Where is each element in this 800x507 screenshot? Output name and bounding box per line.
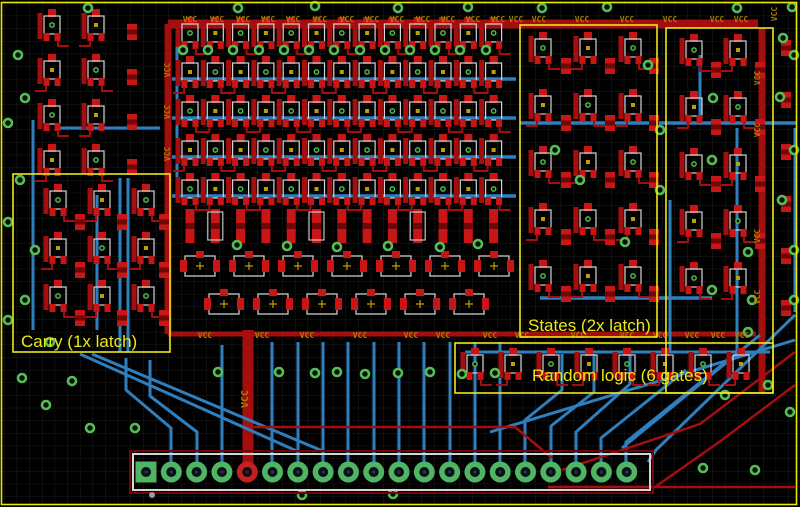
via[interactable] xyxy=(16,176,24,184)
connector-pin-9[interactable] xyxy=(338,462,359,483)
via[interactable] xyxy=(333,243,341,251)
via[interactable] xyxy=(361,370,369,378)
via[interactable] xyxy=(764,381,772,389)
via[interactable] xyxy=(229,46,237,54)
component[interactable] xyxy=(363,209,372,243)
net-label-vcc[interactable]: VCC xyxy=(240,390,251,408)
net-label-vcc[interactable]: VCC xyxy=(735,331,750,340)
component[interactable] xyxy=(159,262,169,278)
net-label-vcc[interactable]: VCC xyxy=(255,331,270,340)
component[interactable] xyxy=(127,69,137,85)
net-label-vcc[interactable]: VCC xyxy=(183,15,198,24)
via[interactable] xyxy=(394,4,402,12)
connector-pin-1[interactable] xyxy=(136,462,157,483)
connector-pin-14[interactable] xyxy=(464,462,485,483)
net-label-vcc[interactable]: VCC xyxy=(685,331,700,340)
via[interactable] xyxy=(234,4,242,12)
via[interactable] xyxy=(4,218,12,226)
via[interactable] xyxy=(786,408,794,416)
component[interactable] xyxy=(605,286,615,302)
net-label-vcc[interactable]: VCC xyxy=(620,15,635,24)
via[interactable] xyxy=(644,61,652,69)
via[interactable] xyxy=(733,4,741,12)
component[interactable] xyxy=(605,229,615,245)
annotation-label-states[interactable]: States (2x latch) xyxy=(528,316,651,335)
net-label-vcc[interactable]: VCC xyxy=(710,15,725,24)
via[interactable] xyxy=(482,46,490,54)
via[interactable] xyxy=(436,243,444,251)
connector-pin-10[interactable] xyxy=(363,462,384,483)
via[interactable] xyxy=(356,46,364,54)
component[interactable] xyxy=(711,176,721,192)
connector-pin-19[interactable] xyxy=(591,462,612,483)
net-label-vcc[interactable]: VCC xyxy=(163,63,172,78)
via[interactable] xyxy=(31,246,39,254)
net-label-vcc[interactable]: VCC xyxy=(483,331,498,340)
component[interactable] xyxy=(287,209,296,243)
via[interactable] xyxy=(21,296,29,304)
component[interactable] xyxy=(561,115,571,131)
via[interactable] xyxy=(431,46,439,54)
net-label-vcc[interactable]: VCC xyxy=(340,15,355,24)
component[interactable] xyxy=(439,209,448,243)
net-label-vcc[interactable]: VCC xyxy=(753,229,762,244)
via[interactable] xyxy=(204,46,212,54)
component[interactable] xyxy=(186,209,195,243)
component[interactable] xyxy=(127,24,137,40)
connector-pin-11[interactable] xyxy=(389,462,410,483)
component[interactable] xyxy=(561,229,571,245)
connector-pin-7[interactable] xyxy=(287,462,308,483)
via[interactable] xyxy=(751,466,759,474)
net-label-vcc[interactable]: VCC xyxy=(711,331,726,340)
via[interactable] xyxy=(255,46,263,54)
via[interactable] xyxy=(283,242,291,250)
component[interactable] xyxy=(755,176,765,192)
via[interactable] xyxy=(699,464,707,472)
via[interactable] xyxy=(4,316,12,324)
component[interactable] xyxy=(711,62,721,78)
component[interactable] xyxy=(261,209,270,243)
via[interactable] xyxy=(333,368,341,376)
via[interactable] xyxy=(576,176,584,184)
net-label-vcc[interactable]: VCC xyxy=(753,71,762,86)
net-label-vcc[interactable]: VCC xyxy=(236,15,251,24)
net-label-vcc[interactable]: VCC xyxy=(753,123,762,138)
net-label-vcc[interactable]: VCC xyxy=(466,15,481,24)
via[interactable] xyxy=(84,4,92,12)
net-label-vcc[interactable]: VCC xyxy=(163,147,172,162)
annotation-label-random[interactable]: Random logic (6 gates) xyxy=(532,366,708,385)
via[interactable] xyxy=(406,46,414,54)
via[interactable] xyxy=(280,46,288,54)
net-label-vcc[interactable]: VCC xyxy=(198,331,213,340)
via[interactable] xyxy=(384,242,392,250)
component[interactable] xyxy=(127,159,137,175)
component[interactable] xyxy=(561,286,571,302)
silkscreen-dot xyxy=(149,492,155,498)
via[interactable] xyxy=(788,3,796,11)
via[interactable] xyxy=(330,46,338,54)
via[interactable] xyxy=(474,240,482,248)
via[interactable] xyxy=(275,368,283,376)
net-label-vcc[interactable]: VCC xyxy=(436,331,451,340)
component[interactable] xyxy=(605,115,615,131)
via[interactable] xyxy=(456,46,464,54)
component[interactable] xyxy=(117,310,127,326)
net-label-vcc[interactable]: VCC xyxy=(441,15,456,24)
net-label-vcc[interactable]: VCC xyxy=(575,15,590,24)
component[interactable] xyxy=(159,310,169,326)
component[interactable] xyxy=(127,114,137,130)
via[interactable] xyxy=(603,3,611,11)
pcb-editor-canvas: VCCVCCVCCVCCVCCVCCVCCVCCVCCVCCVCCVCCVCCV… xyxy=(0,0,800,507)
via[interactable] xyxy=(621,238,629,246)
component[interactable] xyxy=(75,262,85,278)
via[interactable] xyxy=(551,146,559,154)
via[interactable] xyxy=(68,377,76,385)
via[interactable] xyxy=(491,369,499,377)
net-label-vcc[interactable]: VCC xyxy=(416,15,431,24)
connector-pin-8[interactable] xyxy=(313,462,334,483)
net-label-vcc[interactable]: VCC xyxy=(286,15,301,24)
via[interactable] xyxy=(4,119,12,127)
via[interactable] xyxy=(709,94,717,102)
net-label-vcc[interactable]: VCC xyxy=(353,331,368,340)
via[interactable] xyxy=(538,4,546,12)
net-label-vcc[interactable]: VCC xyxy=(753,290,762,305)
net-label-vcc[interactable]: VCC xyxy=(770,7,779,22)
via[interactable] xyxy=(381,46,389,54)
via[interactable] xyxy=(214,368,222,376)
net-label-vcc[interactable]: VCC xyxy=(365,15,380,24)
net-label-vcc[interactable]: VCC xyxy=(404,331,419,340)
component[interactable] xyxy=(117,262,127,278)
via[interactable] xyxy=(86,424,94,432)
component[interactable] xyxy=(711,233,721,249)
component[interactable] xyxy=(605,172,615,188)
component[interactable] xyxy=(388,209,397,243)
via[interactable] xyxy=(708,156,716,164)
via[interactable] xyxy=(305,46,313,54)
component[interactable] xyxy=(236,209,245,243)
connector-pin-2[interactable] xyxy=(161,462,182,483)
connector-pin-6[interactable] xyxy=(262,462,283,483)
board-svg: VCCVCCVCCVCCVCCVCCVCCVCCVCCVCCVCCVCCVCCV… xyxy=(0,0,800,507)
component[interactable] xyxy=(75,214,85,230)
via[interactable] xyxy=(426,368,434,376)
via[interactable] xyxy=(311,369,319,377)
component[interactable] xyxy=(117,214,127,230)
via[interactable] xyxy=(21,94,29,102)
via[interactable] xyxy=(42,401,50,409)
annotation-label-carry[interactable]: Carry (1x latch) xyxy=(21,332,137,351)
via[interactable] xyxy=(18,374,26,382)
net-label-vcc[interactable]: VCC xyxy=(509,15,524,24)
component[interactable] xyxy=(605,58,615,74)
via[interactable] xyxy=(776,93,784,101)
net-label-vcc[interactable]: VCC xyxy=(210,15,225,24)
component[interactable] xyxy=(464,209,473,243)
net-label-vcc[interactable]: VCC xyxy=(390,15,405,24)
connector-pin-13[interactable] xyxy=(439,462,460,483)
connector-pin-15[interactable] xyxy=(490,462,511,483)
connector-pin-12[interactable] xyxy=(414,462,435,483)
via[interactable] xyxy=(179,46,187,54)
via[interactable] xyxy=(464,3,472,11)
via[interactable] xyxy=(233,241,241,249)
via[interactable] xyxy=(778,196,786,204)
component[interactable] xyxy=(337,209,346,243)
via[interactable] xyxy=(458,370,466,378)
net-label-vcc[interactable]: VCC xyxy=(663,15,678,24)
net-label-vcc[interactable]: VCC xyxy=(734,15,749,24)
connector-pin-3[interactable] xyxy=(186,462,207,483)
net-label-vcc[interactable]: VCC xyxy=(163,105,172,120)
component[interactable] xyxy=(561,58,571,74)
via[interactable] xyxy=(779,34,787,42)
connector-pin-16[interactable] xyxy=(515,462,536,483)
connector-pin-4[interactable] xyxy=(211,462,232,483)
component[interactable] xyxy=(489,209,498,243)
net-label-vcc[interactable]: VCC xyxy=(491,15,506,24)
connector-pin-18[interactable] xyxy=(566,462,587,483)
via[interactable] xyxy=(744,248,752,256)
via[interactable] xyxy=(131,424,139,432)
connector-pin-17[interactable] xyxy=(540,462,561,483)
net-label-vcc[interactable]: VCC xyxy=(313,15,328,24)
net-label-vcc[interactable]: VCC xyxy=(532,15,547,24)
component[interactable] xyxy=(561,172,571,188)
component[interactable] xyxy=(711,119,721,135)
connector-pin-20[interactable] xyxy=(616,462,637,483)
component[interactable] xyxy=(75,310,85,326)
via[interactable] xyxy=(14,51,22,59)
component[interactable] xyxy=(159,214,169,230)
via[interactable] xyxy=(394,369,402,377)
via[interactable] xyxy=(708,286,716,294)
net-label-vcc[interactable]: VCC xyxy=(261,15,276,24)
connector-pin-5[interactable] xyxy=(237,462,258,483)
net-label-vcc[interactable]: VCC xyxy=(300,331,315,340)
